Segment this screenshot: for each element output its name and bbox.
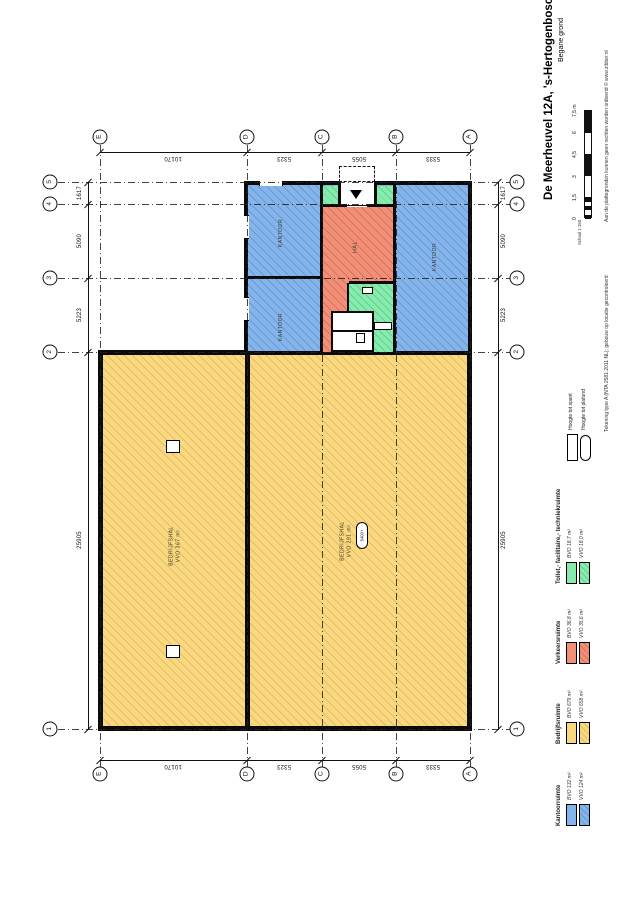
room-label-kantoor: KANTOOR xyxy=(432,243,439,271)
dim-label: 5333 xyxy=(426,155,440,161)
legend-vvo-verkeersruimte: VVO 35,6 m² xyxy=(580,609,586,638)
room-name: BEDRIJFSHAL xyxy=(340,521,347,560)
legend-chip-verkeersruimte-solid xyxy=(566,642,577,664)
grid-bubble-e: E xyxy=(93,130,108,145)
page-subtitle: Begane grond xyxy=(558,18,566,62)
scale-segment xyxy=(585,154,591,176)
grid-bubble-c: C xyxy=(315,130,330,145)
disclaimer-note: Aan de plattegronden kunnen geen rechten… xyxy=(605,50,611,222)
entrance-door-line xyxy=(347,205,367,206)
legend-label-toilet: Toilet,- facilitaire,- techniekruimte xyxy=(556,489,563,584)
cubicle-divider-wall xyxy=(331,330,374,332)
height-tag: 5400+ xyxy=(356,522,368,549)
dim-label: 5055 xyxy=(352,763,366,769)
floor-plan-page: 5400+ 10170 5323 5055 5333 10170 5323 50… xyxy=(0,0,634,901)
grid-bubble-b: B xyxy=(389,767,404,782)
column xyxy=(166,440,180,453)
room-label-bedrijfshal-right: BEDRIJFSHAL VVO 291 m² xyxy=(340,521,353,560)
legend-height-plafond-label: Hoogte tot plafond xyxy=(582,389,588,430)
legend-chip-toilet-solid xyxy=(566,562,577,584)
room-label-kantoor: KANTOOR xyxy=(278,313,285,341)
scale-tick-label: 1,5 xyxy=(573,194,579,201)
scale-segment xyxy=(585,176,591,198)
grid-line-1 xyxy=(58,729,510,730)
grid-bubble-4: 4 xyxy=(510,197,525,212)
dim-label: 5323 xyxy=(277,763,291,769)
dim-line-bottom xyxy=(100,760,470,761)
grid-line-e xyxy=(100,145,101,767)
legend-chip-kantoorruimte-hatched xyxy=(579,804,590,826)
legend-label-bedrijfsruimte: Bedrijfsruimte xyxy=(556,703,563,744)
legend-bvo-kantoorruimte: BVO 132 m² xyxy=(568,772,574,800)
legend-bvo-toilet: BVO 18,7 m² xyxy=(568,529,574,558)
grid-line-b xyxy=(396,145,397,767)
drawing-type-note: Tekening type A (NTA 2581:2011 NL); gebo… xyxy=(605,275,611,432)
grid-line-a xyxy=(470,145,471,767)
grid-bubble-a: A xyxy=(463,767,478,782)
page-title: De Meerheuvel 12A, 's-Hertogenbosch xyxy=(543,0,556,200)
scale-tick-label: 6 xyxy=(573,131,579,134)
grid-bubble-d: D xyxy=(240,767,255,782)
entrance-arrow-icon xyxy=(350,190,362,199)
grid-line-2 xyxy=(58,352,510,353)
grid-bubble-a: A xyxy=(463,130,478,145)
grid-bubble-3: 3 xyxy=(510,271,525,286)
scale-bar xyxy=(584,110,592,218)
room-label-bedrijfshal-left: BEDRIJFSHAL VVO 367 m² xyxy=(169,526,182,565)
grid-bubble-3: 3 xyxy=(43,271,58,286)
dim-line-left xyxy=(88,182,89,729)
dim-label: 10170 xyxy=(164,763,182,769)
grid-bubble-4: 4 xyxy=(43,197,58,212)
legend-bvo-bedrijfsruimte: BVO 679 m² xyxy=(568,690,574,718)
legend-chip-kantoorruimte-solid xyxy=(566,804,577,826)
legend-height-spant-symbol xyxy=(567,434,578,461)
grid-bubble-2: 2 xyxy=(510,345,525,360)
dim-label: 10170 xyxy=(164,155,182,161)
legend-label-verkeersruimte: Verkeersruimte xyxy=(556,621,563,664)
scale-segment xyxy=(585,133,591,155)
grid-line-d xyxy=(247,145,248,767)
legend-vvo-bedrijfsruimte: VVO 658 m² xyxy=(580,690,586,718)
grid-bubble-2: 2 xyxy=(43,345,58,360)
dim-label: 5223 xyxy=(77,308,85,322)
dim-line-right xyxy=(498,182,499,729)
height-tag-value: 5400+ xyxy=(360,530,365,542)
legend-chip-bedrijfsruimte-hatched xyxy=(579,722,590,744)
room-name: BEDRIJFSHAL xyxy=(169,526,176,565)
scale-tick-label: 3 xyxy=(573,175,579,178)
grid-line-4 xyxy=(58,204,510,205)
grid-bubble-e: E xyxy=(93,767,108,782)
grid-bubble-5: 5 xyxy=(510,175,525,190)
legend-chip-verkeersruimte-hatched xyxy=(579,642,590,664)
room-label-hal: HAL xyxy=(352,241,359,253)
toilet-fixture xyxy=(356,333,365,343)
grid-bubble-1: 1 xyxy=(43,722,58,737)
legend-chip-toilet-hatched xyxy=(579,562,590,584)
warehouse-outline xyxy=(98,350,472,731)
dim-label: 25905 xyxy=(501,531,509,549)
dim-label: 5223 xyxy=(501,308,509,322)
washbasin-fixture xyxy=(362,287,373,294)
dim-label: 5055 xyxy=(352,155,366,161)
entrance-canopy xyxy=(339,166,375,182)
scale-tick-label: 4,5 xyxy=(573,151,579,158)
room-area: VVO 367 m² xyxy=(175,526,182,565)
dim-label: 1617 xyxy=(501,186,509,200)
dim-label: 5323 xyxy=(277,155,291,161)
room-area: VVO 291 m² xyxy=(346,521,353,560)
legend-vvo-toilet: VVO 18,0 m² xyxy=(580,529,586,558)
dim-label: 5090 xyxy=(77,234,85,248)
legend-label-kantoorruimte: Kantoorruimte xyxy=(556,785,563,826)
dim-label: 5090 xyxy=(501,234,509,248)
dim-line-top xyxy=(100,152,470,153)
scale-label: Schaal 1:150 xyxy=(578,220,583,245)
grid-bubble-1: 1 xyxy=(510,722,525,737)
dim-label: 1617 xyxy=(77,186,85,200)
legend-bvo-verkeersruimte: BVO 36,8 m² xyxy=(568,609,574,638)
dim-label: 5333 xyxy=(426,763,440,769)
scale-tick-label: 7,5 m xyxy=(573,104,579,117)
legend-height-plafond-symbol xyxy=(580,435,591,461)
grid-bubble-5: 5 xyxy=(43,175,58,190)
grid-bubble-c: C xyxy=(315,767,330,782)
column xyxy=(166,645,180,658)
scale-segment xyxy=(585,111,591,133)
grid-bubble-b: B xyxy=(389,130,404,145)
legend-chip-bedrijfsruimte-solid xyxy=(566,722,577,744)
legend-vvo-kantoorruimte: VVO 124 m² xyxy=(580,772,586,800)
duct-recess xyxy=(374,322,392,330)
room-label-kantoor: KANTOOR xyxy=(278,219,285,247)
wall-toilet-top xyxy=(349,281,393,284)
scale-segment xyxy=(585,215,591,219)
grid-line-3 xyxy=(58,278,510,279)
grid-line-c xyxy=(322,145,323,767)
grid-bubble-d: D xyxy=(240,130,255,145)
legend-height-spant-label: Hoogte tot spant xyxy=(569,393,575,430)
dim-label: 25905 xyxy=(77,531,85,549)
grid-line-5 xyxy=(58,182,510,183)
